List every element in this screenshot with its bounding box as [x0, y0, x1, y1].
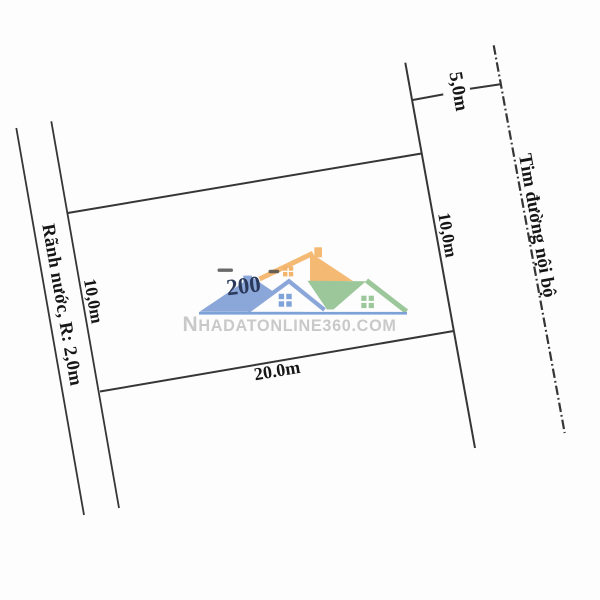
- svg-text:200: 200: [225, 271, 262, 300]
- svg-text:NHADATONLINE360.COM: NHADATONLINE360.COM: [183, 313, 397, 336]
